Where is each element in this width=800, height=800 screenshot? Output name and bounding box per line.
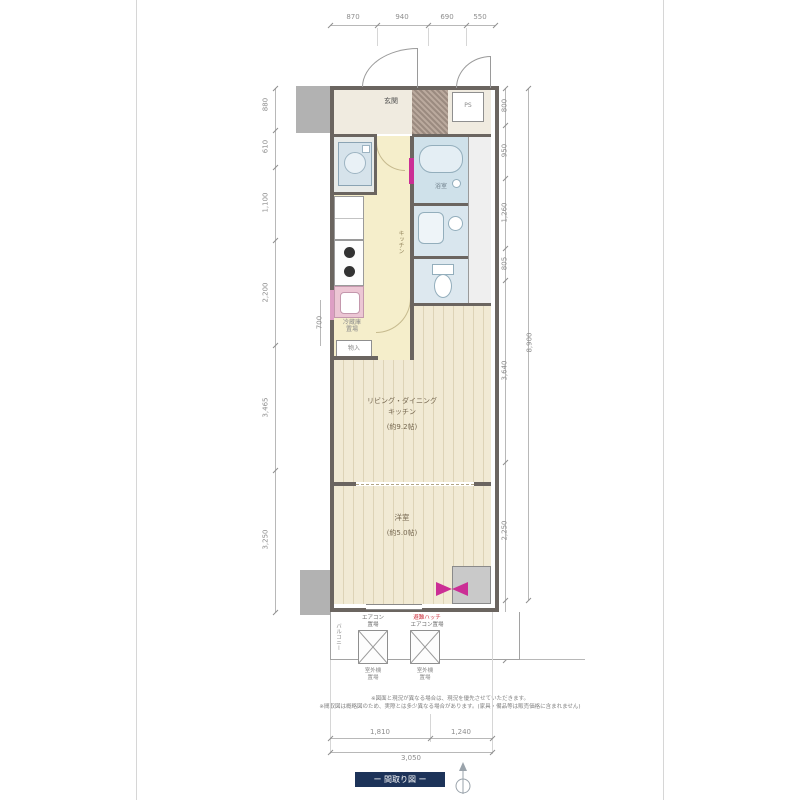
dim-top-2: 940 <box>382 13 422 22</box>
boundary-line-extension <box>520 659 585 660</box>
tick <box>526 598 532 604</box>
dim-line-bottom-1 <box>330 738 492 739</box>
dim-line-bottom-total <box>330 752 492 753</box>
floorplan-image: 870 940 690 550 880 610 1,100 2,200 3,46… <box>0 0 800 800</box>
ac-space-label-1: エアコン 置場 <box>346 615 400 628</box>
ldk-floor-upper <box>414 306 491 360</box>
pipe-space-label: PS <box>453 102 483 109</box>
dim-right-total: 8,900 <box>526 323 535 363</box>
dim-left-2: 610 <box>262 127 271 167</box>
vanity-room-floor <box>414 206 468 256</box>
pipe-space-strip <box>468 137 491 305</box>
bathtub <box>419 145 463 173</box>
dim-right-3: 1,260 <box>501 193 510 233</box>
dim-right-4: 805 <box>501 244 510 284</box>
ac-space-label-2: 避難ハッチ エアコン置場 <box>398 615 456 628</box>
storage-box: 物入 <box>336 340 372 357</box>
vanity-unit <box>418 212 444 244</box>
wall <box>374 136 377 194</box>
fridge-label-line2: 置場 <box>334 326 370 333</box>
washing-machine-box <box>338 142 372 186</box>
window-highlight-left <box>330 290 334 320</box>
wall <box>334 134 377 137</box>
dim-right-6: 2,250 <box>501 511 510 551</box>
ldk-floor <box>334 360 491 482</box>
toilet-room-floor <box>414 259 468 305</box>
bedroom-label: 洋室 <box>378 512 426 523</box>
image-left-edge <box>136 0 137 800</box>
dim-right-1: 800 <box>501 86 510 126</box>
sink-basin <box>340 292 360 314</box>
guide <box>330 660 331 754</box>
bathroom-floor: 浴室 <box>414 137 468 203</box>
fridge-label-line1: 冷蔵庫 <box>334 319 370 326</box>
balcony-window <box>366 604 422 610</box>
fridge-space-label: 冷蔵庫 置場 <box>334 319 370 333</box>
kitchen-label: キッチン <box>396 218 405 266</box>
dim-bottom-1: 1,810 <box>360 728 400 737</box>
dim-left-3: 1,100 <box>262 183 271 223</box>
ldk-label-line2: キッチン <box>340 407 464 417</box>
image-right-edge <box>663 0 664 800</box>
dim-left-5: 3,465 <box>262 388 271 428</box>
tick <box>493 23 499 29</box>
storage-label: 物入 <box>337 345 371 352</box>
door-arc-2 <box>456 56 491 88</box>
entrance-tile <box>412 90 448 134</box>
dim-left-1: 880 <box>262 85 271 125</box>
bedroom-area-label: (約5.0帖) <box>374 528 430 538</box>
cabinet-line <box>335 218 363 219</box>
dim-left-small: 700 <box>316 303 325 343</box>
guide <box>428 28 429 46</box>
disclaimer-line2: ※間取図は概略図のため、実際とは多少異なる場合があります。(家具・備品等は販売価… <box>250 704 650 711</box>
kitchen-sink <box>334 286 364 318</box>
ac-outdoor-unit-icon <box>410 630 440 664</box>
stove-burner-icon <box>344 247 355 258</box>
pipe-space-box: PS <box>452 92 484 122</box>
sliding-door-line <box>356 484 474 485</box>
dim-top-4: 550 <box>460 13 500 22</box>
ac2-top-line2: エアコン置場 <box>398 622 456 629</box>
agency-badge: ー 間取り図 ー <box>355 772 445 787</box>
entrance-door-leaf <box>417 48 418 88</box>
door-leaf-2 <box>490 56 491 88</box>
tick <box>273 610 279 616</box>
outdoor-unit-label-2: 室外機 置場 <box>398 668 452 681</box>
dim-bottom-total: 3,050 <box>391 754 431 763</box>
bath-label: 浴室 <box>424 181 458 190</box>
dim-left-4: 2,200 <box>262 273 271 313</box>
entrance-door-arc <box>362 48 418 87</box>
dim-right-5: 3,640 <box>501 351 510 391</box>
dim-line-top <box>330 25 495 26</box>
guide <box>377 28 378 46</box>
washing-machine-panel <box>362 145 370 153</box>
kitchen-stove <box>334 240 364 286</box>
entrance-label: 玄関 <box>376 96 406 106</box>
disclaimer-line1: ※図面と現況が異なる場合は、現況を優先させていただきます。 <box>260 696 640 703</box>
compass-north-icon <box>452 762 474 798</box>
window-marker-icon <box>436 582 468 596</box>
toilet-bowl <box>434 274 452 298</box>
ac1-top-line2: 置場 <box>346 622 400 629</box>
dim-bottom-2: 1,240 <box>441 728 481 737</box>
dim-top-1: 870 <box>333 13 373 22</box>
ldk-label-line1: リビング・ダイニング <box>340 396 464 406</box>
balcony-label: バルコニー <box>334 616 342 658</box>
dim-left-6: 3,250 <box>262 520 271 560</box>
tick <box>490 750 496 756</box>
vanity-bowl-icon <box>448 216 463 231</box>
ldk-area-label: (約9.2帖) <box>340 422 464 432</box>
ac-outdoor-unit-icon <box>358 630 388 664</box>
dim-right-2: 950 <box>501 131 510 171</box>
ou1-line2: 置場 <box>346 675 400 682</box>
stove-burner-icon <box>344 266 355 277</box>
guide <box>492 612 493 754</box>
washing-machine-drum <box>344 152 366 174</box>
outdoor-unit-label-1: 室外機 置場 <box>346 668 400 681</box>
wall <box>334 192 377 195</box>
ou2-line2: 置場 <box>398 675 452 682</box>
guide <box>466 28 467 46</box>
kitchen-cabinet <box>334 196 364 240</box>
